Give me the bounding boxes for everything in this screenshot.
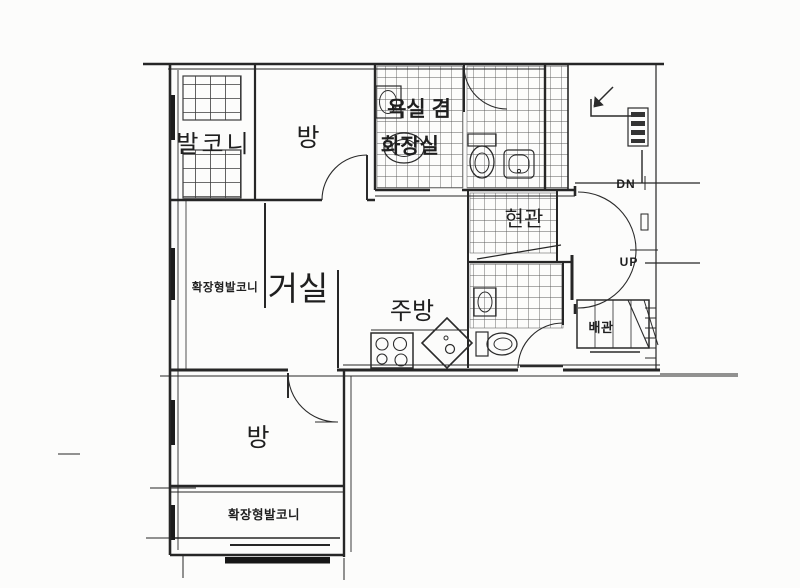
room-label-bathroom-line1: 욕실 겸 <box>387 98 451 121</box>
room-label-balcony-top: 발코니 <box>176 131 251 158</box>
room-label-extended-balcony-left: 확장형발코니 <box>192 280 258 294</box>
room-label-extended-balcony-bottom: 확장형발코니 <box>228 507 300 522</box>
duct-icon <box>628 108 648 146</box>
room-label-kitchen: 주방 <box>390 298 434 325</box>
room-label-bedroom-top: 방 <box>296 124 319 152</box>
bathroom2-tile-area <box>470 264 563 328</box>
room-label-pipe-shaft: 배관 <box>589 320 614 335</box>
room-label-bathroom-line2: 화장실 <box>381 135 439 158</box>
room-label-entrance: 현관 <box>505 208 544 231</box>
stairs-up-label: UP <box>620 255 639 269</box>
toilet-icon-2 <box>476 332 517 356</box>
bottom-window-bar <box>225 557 330 564</box>
room-label-bedroom-bottom: 방 <box>246 424 269 452</box>
kitchen-sink-icon <box>422 318 472 368</box>
floor-plan-drawing: 발코니 방 욕실 겸 화장실 현관 거실 확장형발코니 주방 배관 방 확장형발… <box>0 0 800 588</box>
bathroom-tile-area <box>377 66 463 188</box>
room-label-living: 거실 <box>268 270 329 307</box>
floor-plan-page: 발코니 방 욕실 겸 화장실 현관 거실 확장형발코니 주방 배관 방 확장형발… <box>0 0 800 588</box>
stairs-down-label: DN <box>616 177 635 191</box>
balcony-window-grid-top <box>183 76 241 120</box>
